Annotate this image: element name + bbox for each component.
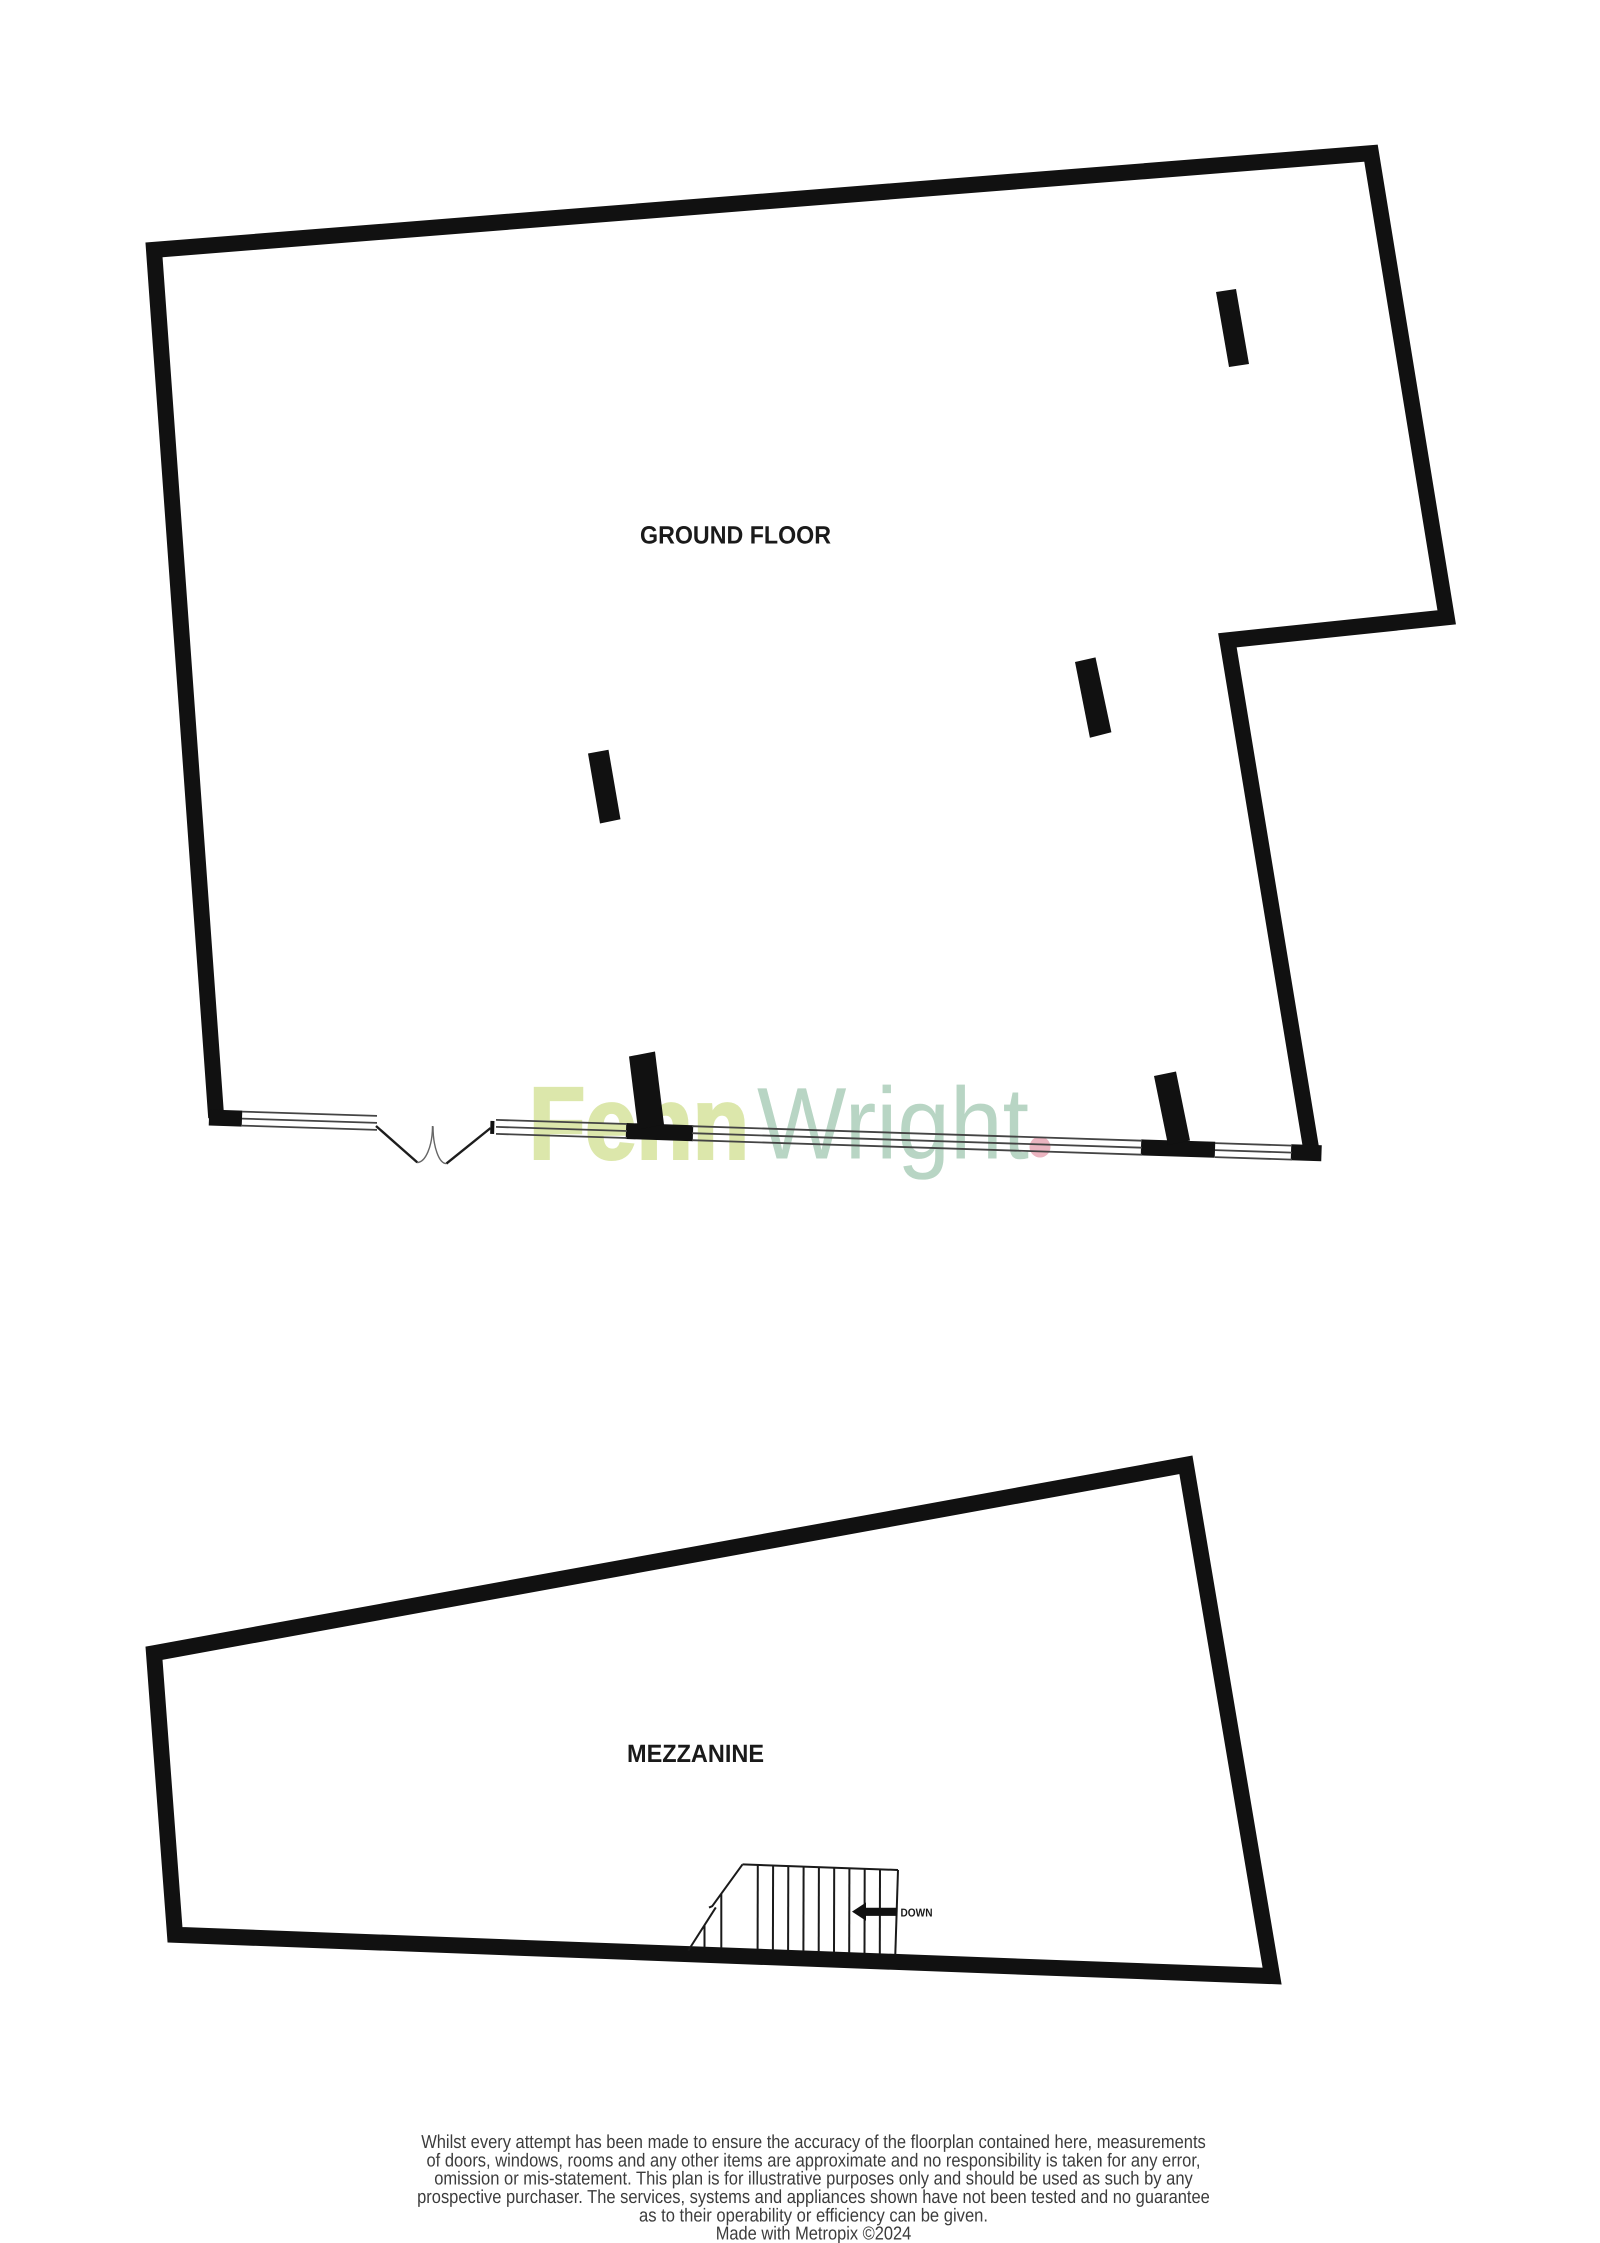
svg-text:DOWN: DOWN [901,1908,933,1920]
svg-text:Made with Metropix ©2024: Made with Metropix ©2024 [716,2223,912,2243]
svg-text:GROUND FLOOR: GROUND FLOOR [640,522,831,550]
svg-text:MEZZANINE: MEZZANINE [627,1740,764,1768]
svg-text:Wright: Wright [757,1067,1029,1181]
